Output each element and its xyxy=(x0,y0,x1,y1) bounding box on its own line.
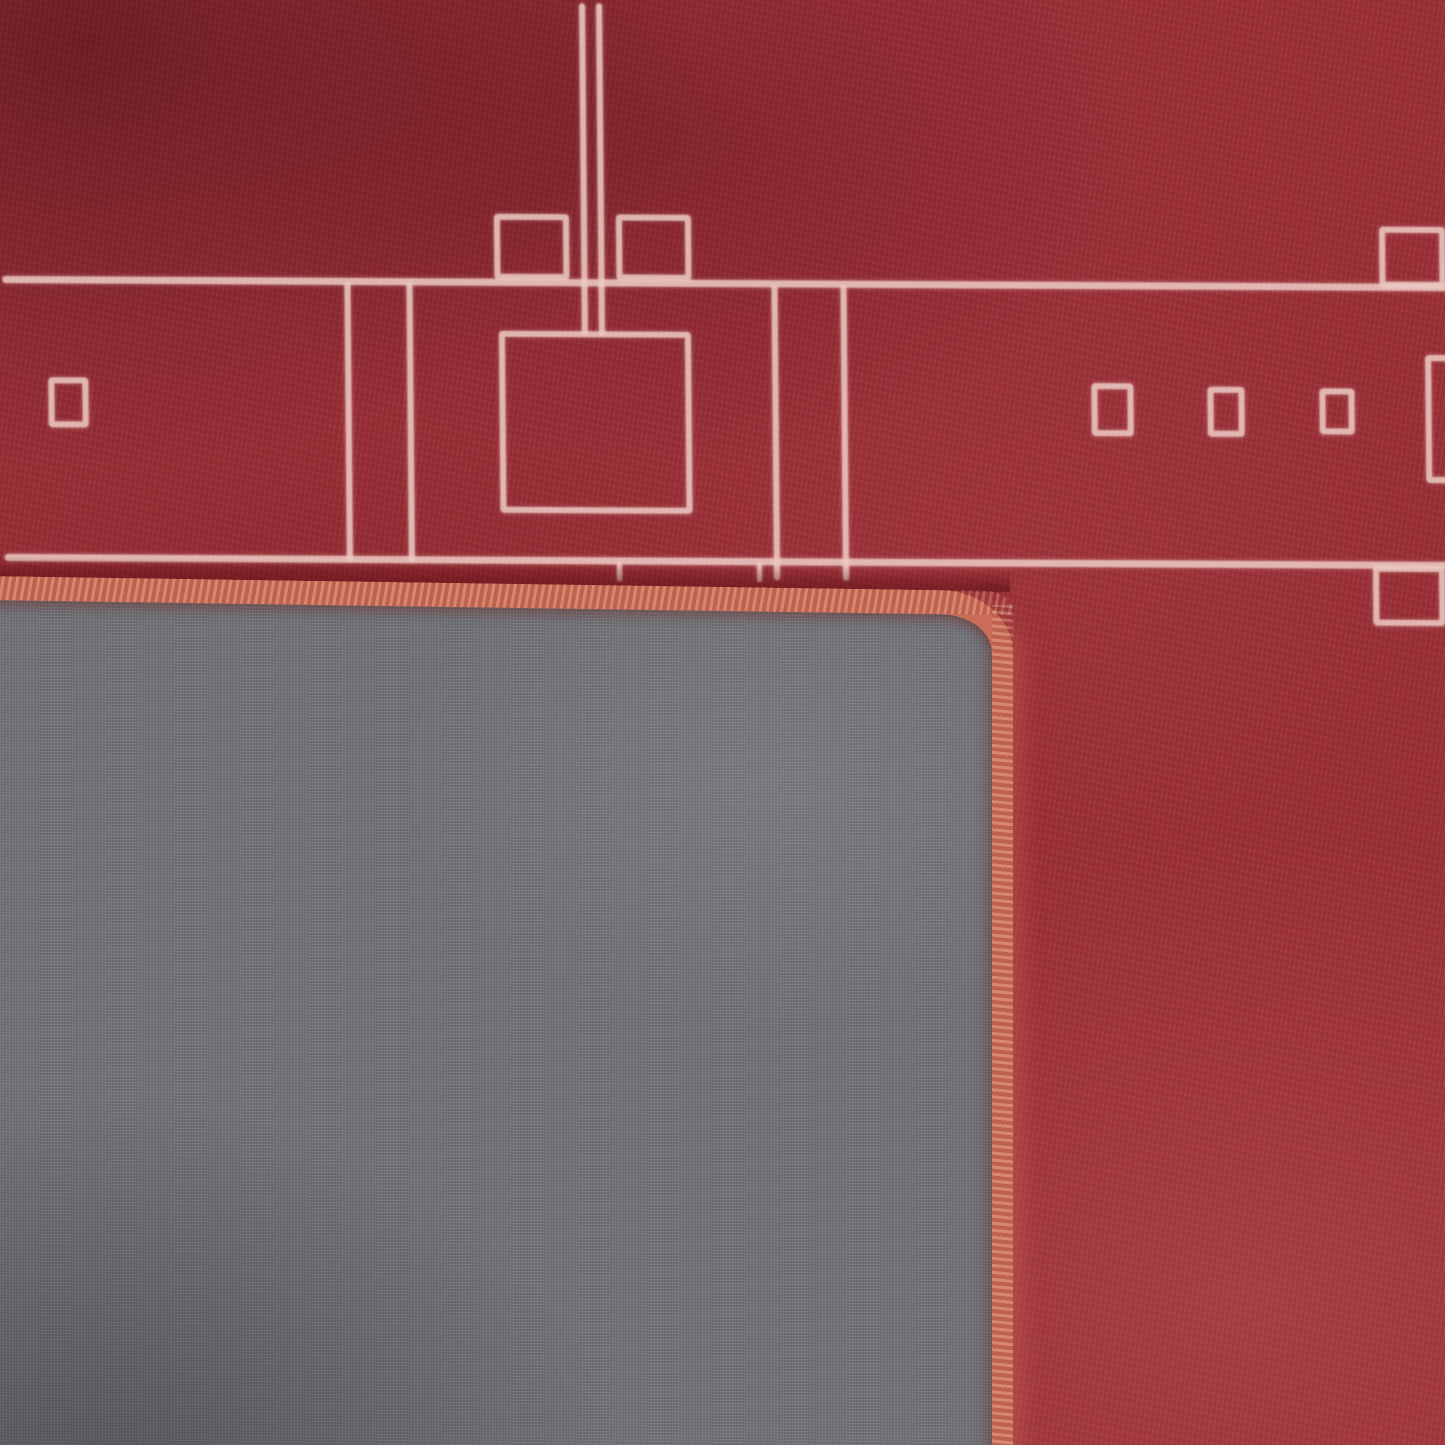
serge-edge-right xyxy=(992,605,1013,1445)
pattern-square-top-right-on-h1 xyxy=(1379,227,1445,288)
pattern-square-chandelier-left xyxy=(494,214,570,280)
pattern-square-chandelier-big xyxy=(499,331,693,514)
pattern-vline-pair-left-a xyxy=(344,282,352,562)
pattern-hline-h1 xyxy=(2,276,1445,291)
pattern-square-row-small-1 xyxy=(1091,383,1133,436)
pattern-square-row-small-2 xyxy=(1207,387,1244,437)
rug-folded-corner xyxy=(0,576,1013,1445)
pattern-vline-pair-left-b xyxy=(406,282,414,562)
pattern-square-row-small-3 xyxy=(1319,388,1354,434)
pattern-square-floating-far-left xyxy=(48,377,88,427)
pattern-square-chandelier-right xyxy=(616,214,692,280)
pattern-square-below-h2-right xyxy=(1373,566,1445,626)
pattern-square-right-edge-mid xyxy=(1425,355,1445,483)
pattern-vline-pair-right-b xyxy=(840,285,849,581)
pattern-vline-pair-right-a xyxy=(771,284,780,580)
rug-photo xyxy=(0,0,1445,1445)
